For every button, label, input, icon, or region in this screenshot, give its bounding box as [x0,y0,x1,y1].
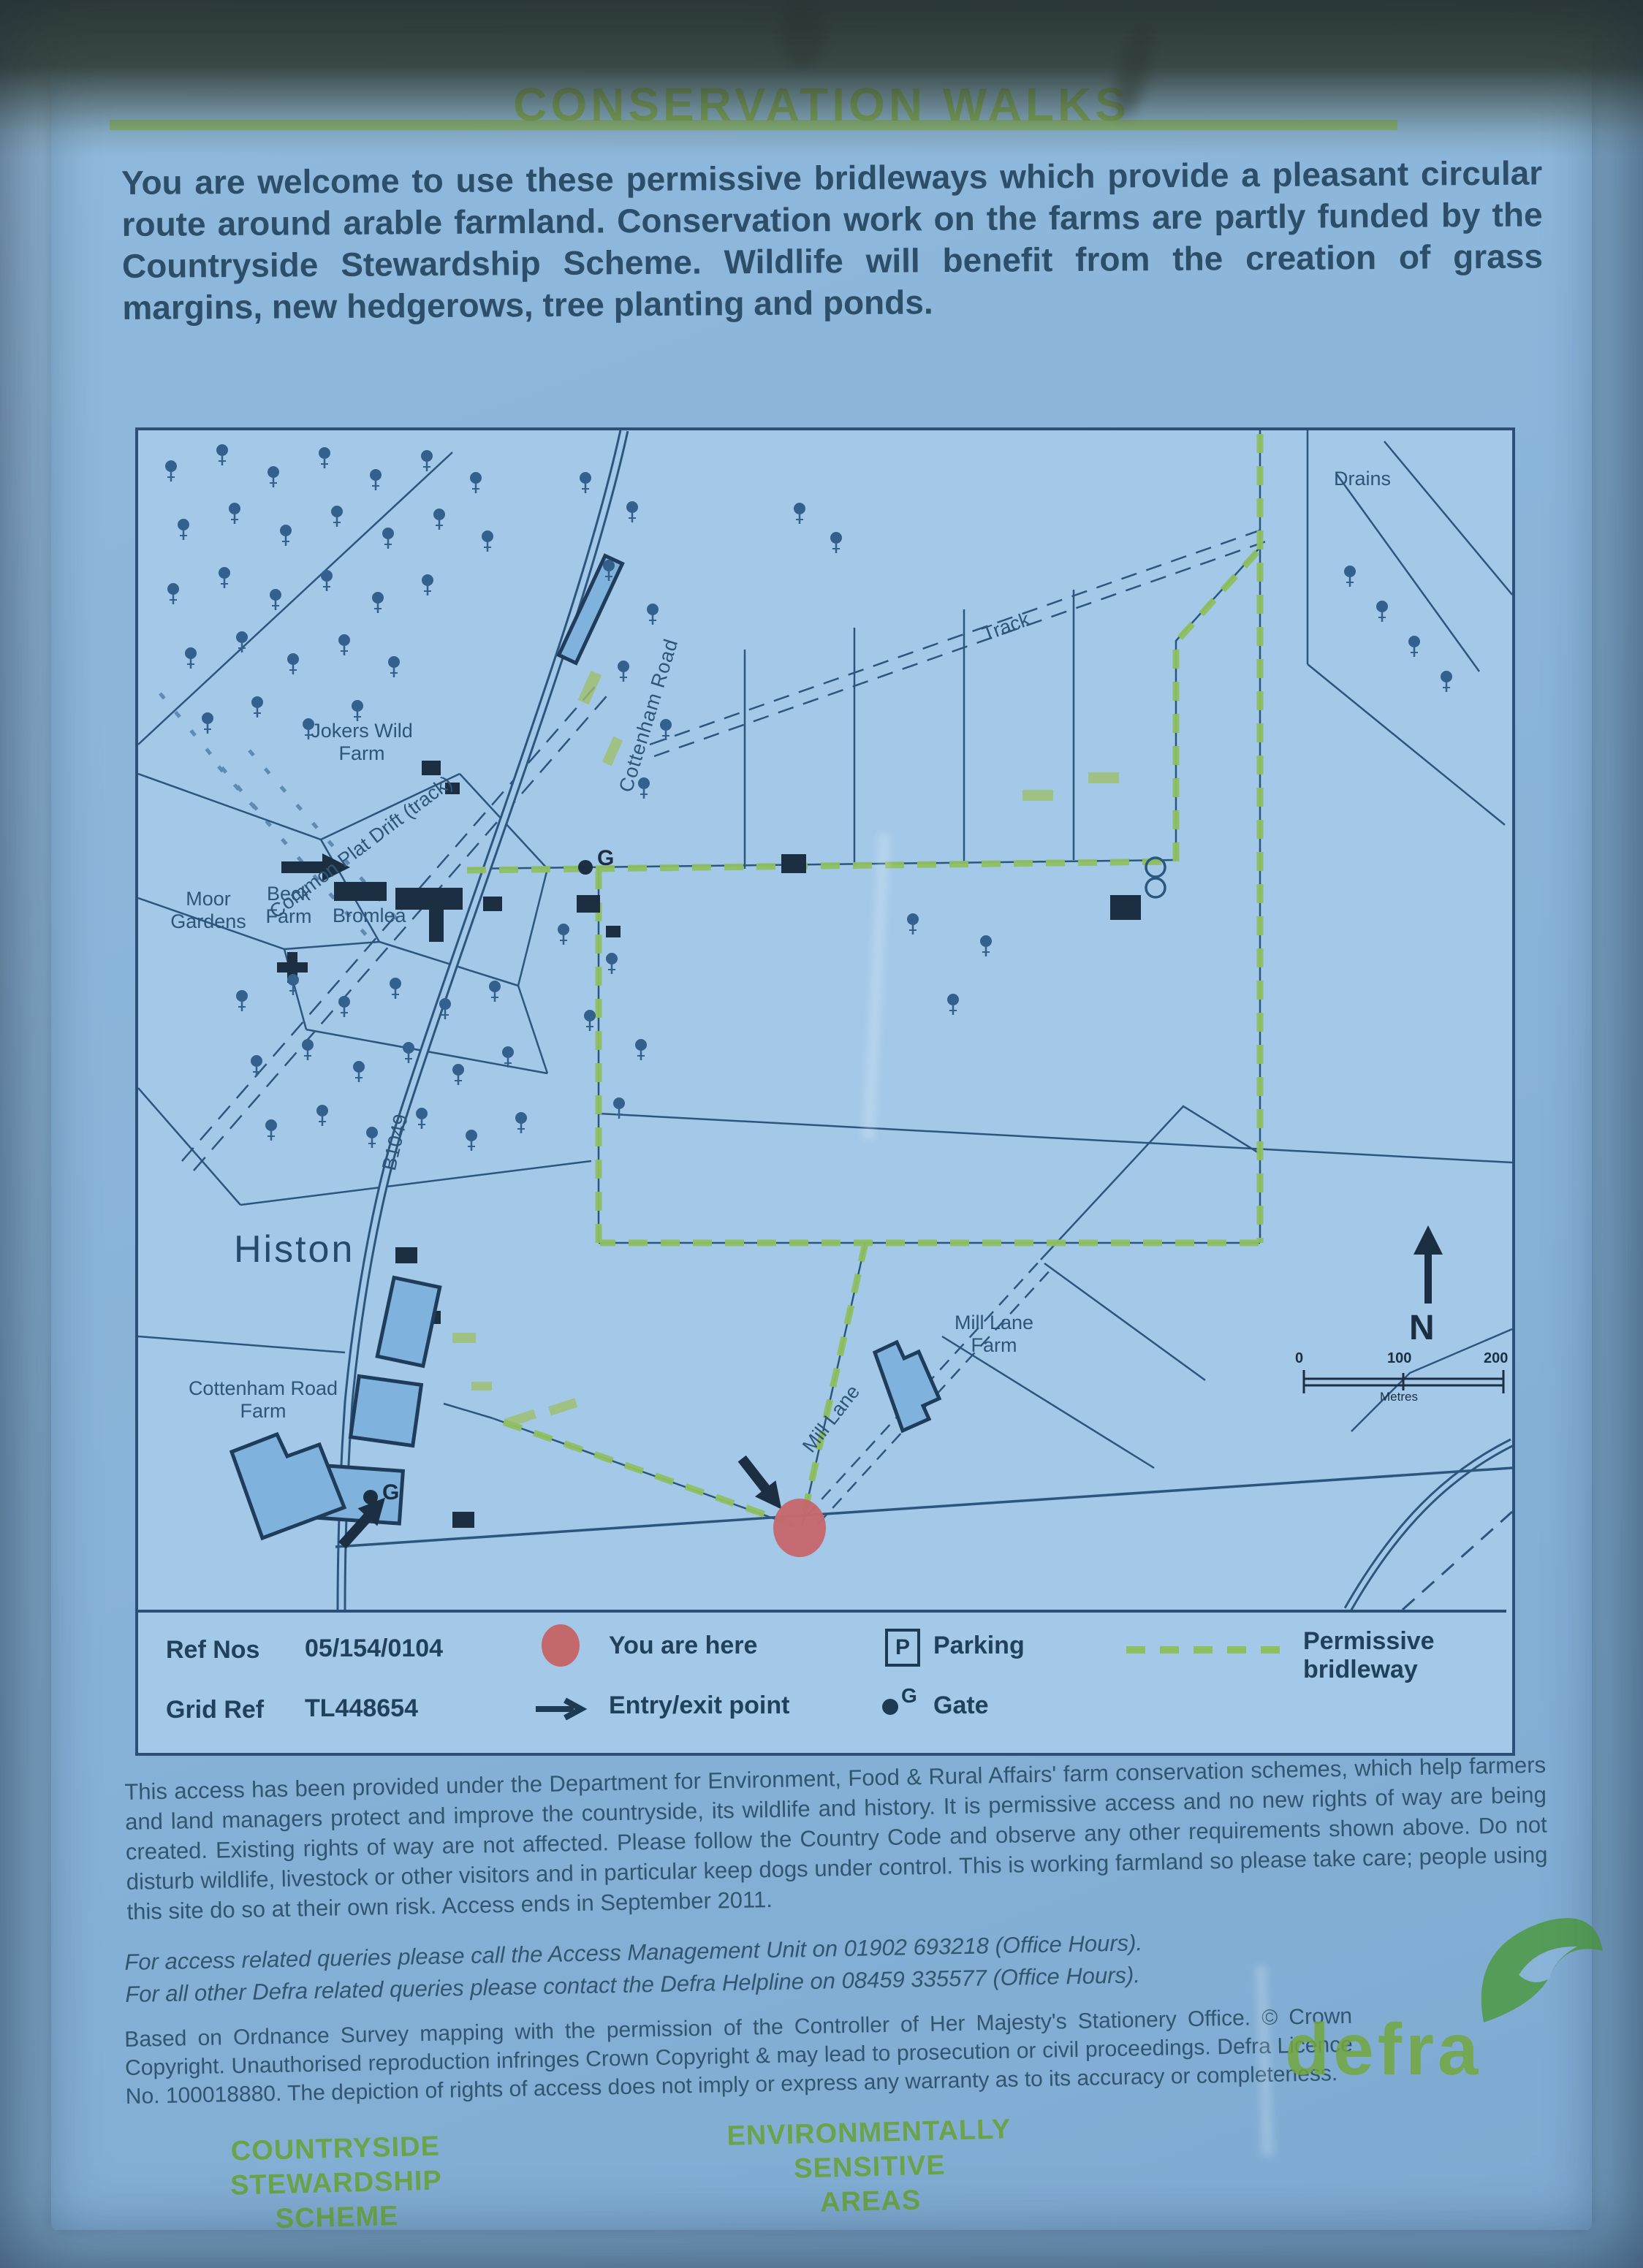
ref-nos-value: 05/154/0104 [305,1635,443,1663]
bridleway-dash-icon [1126,1646,1283,1654]
page-title: CONSERVATION WALKS [0,77,1643,132]
parking-icon: P [885,1629,920,1667]
map-legend: Ref Nos 05/154/0104 Grid Ref TL448654 Yo… [138,1610,1506,1747]
grid-ref-value: TL448654 [305,1694,418,1723]
parking-label: Parking [933,1632,1025,1660]
countryside-stewardship-logo: COUNTRYSIDE STEWARDSHIP SCHEME [167,2128,505,2239]
map-label-beck-farm: Beck Farm [234,883,344,928]
entry-exit-arrow-icon [533,1694,603,1724]
map-label-histon: Histon [234,1228,354,1271]
sign-photo: CONSERVATION WALKS You are welcome to us… [0,0,1643,2268]
defra-leaf-icon [1468,1906,1614,2041]
you-are-here-dot [773,1499,826,1557]
intro-paragraph: You are welcome to use these permissive … [121,152,1544,329]
field-boundaries [138,430,1512,1526]
you-are-here-icon [542,1624,580,1667]
gate-icon [882,1699,898,1715]
map-label-drains: Drains [1334,468,1391,490]
defra-logo-text: defra [1285,2008,1482,2092]
scale-mid: 100 [1387,1350,1411,1367]
entry-exit-label: Entry/exit point [609,1692,789,1720]
you-are-here-label: You are here [609,1632,757,1660]
tracks [182,529,1512,1610]
ref-nos-label: Ref Nos [166,1636,259,1664]
map-label-mill-lane-farm: Mill Lane Farm [910,1312,1078,1357]
grid-ref-label: Grid Ref [166,1696,264,1724]
permissive-bridleway-label: Permissive bridleway [1303,1627,1506,1684]
map-label-bromlea: Bromlea [333,905,406,927]
scale-end: 200 [1484,1350,1508,1367]
north-arrow-icon [1414,1225,1443,1304]
north-label: N [1409,1308,1436,1348]
gate-icon-letter: G [901,1684,917,1708]
scale-start: 0 [1295,1350,1303,1367]
access-paragraph: This access has been provided under the … [124,1750,1549,1927]
entry-arrows [281,853,792,1554]
map-gate-letter-1: G [597,846,614,871]
scale-unit: Metres [1380,1390,1418,1404]
map-label-cottenham-road-farm: Cottenham Road Farm [164,1377,362,1423]
gate-label: Gate [933,1692,989,1720]
map-gate-letter-2: G [382,1480,399,1505]
map-label-jokers-wild-farm: Jokers Wild Farm [281,720,442,765]
main-road [335,430,1512,1610]
environmentally-sensitive-areas-logo: ENVIRONMENTALLY SENSITIVE AREAS [634,2110,1104,2225]
